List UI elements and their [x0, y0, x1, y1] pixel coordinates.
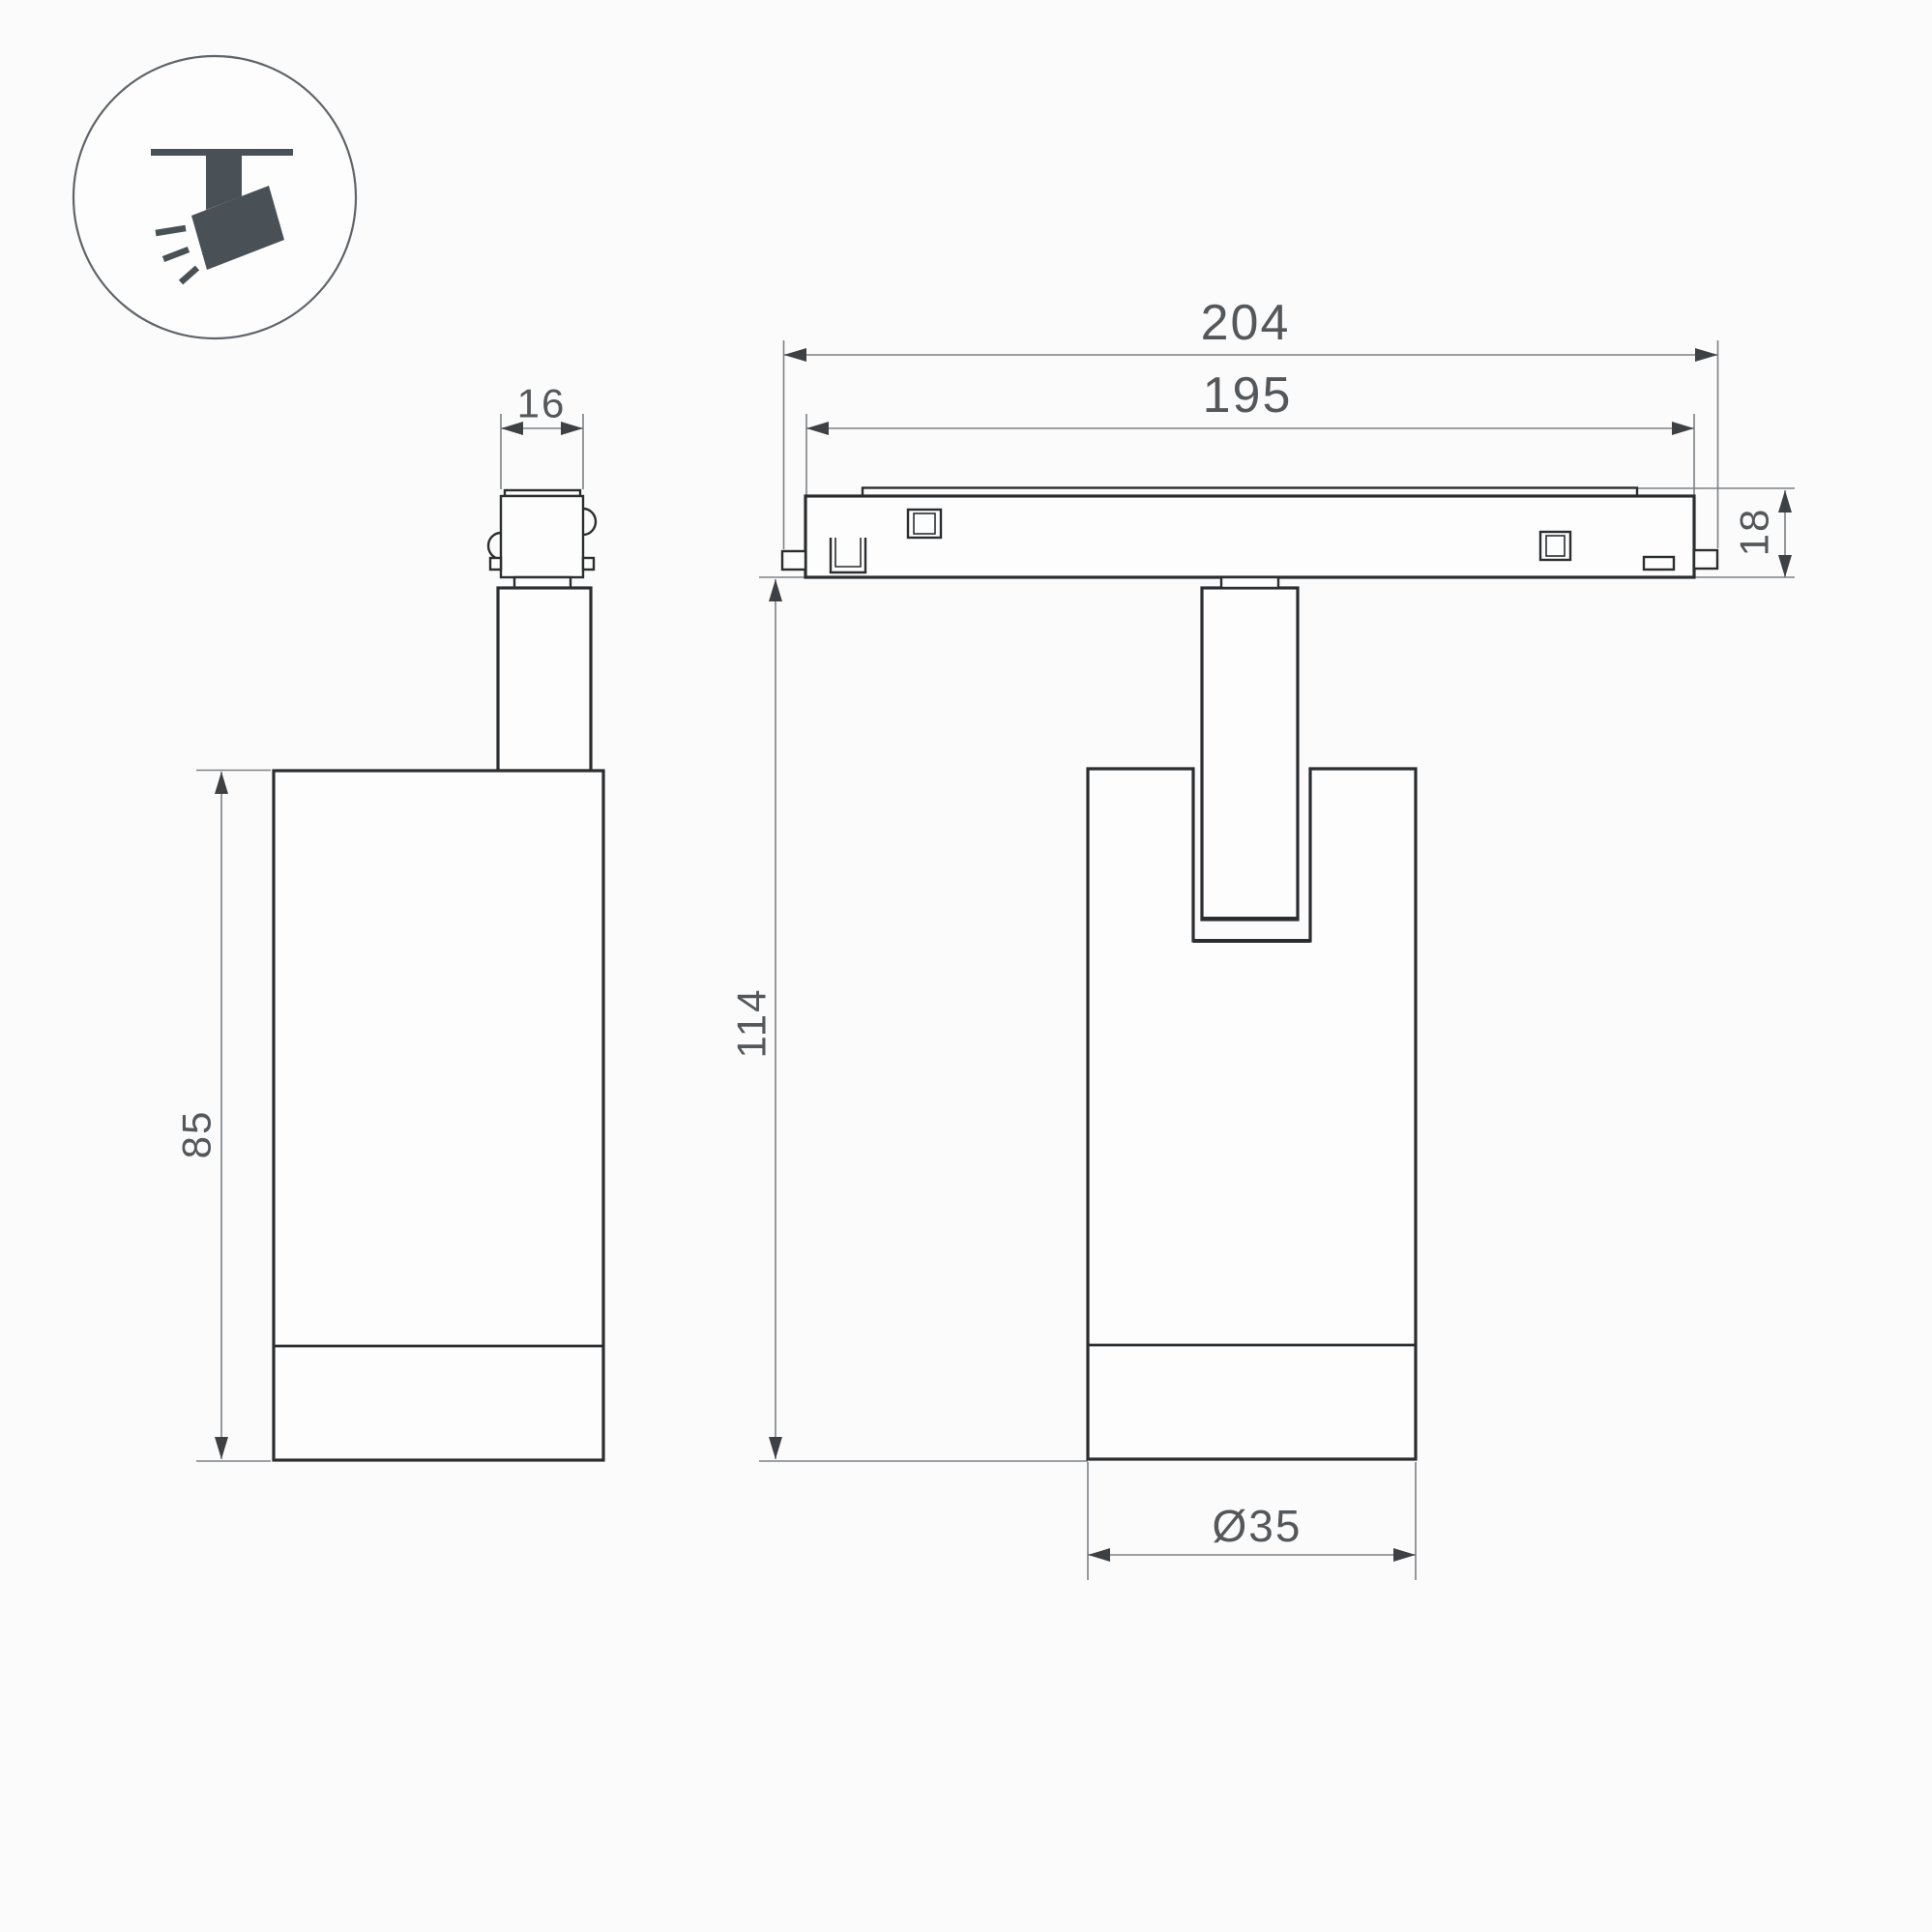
arrowhead: [769, 579, 782, 601]
stem-collar: [1221, 577, 1278, 588]
arrowhead: [1778, 555, 1792, 577]
label-track-height: 18: [1732, 508, 1777, 557]
spot-body: [274, 771, 603, 1460]
label-body-height: 85: [174, 1110, 220, 1159]
label-track-length: 204: [1201, 295, 1291, 351]
arrowhead: [769, 1437, 782, 1459]
track-end-tab-right: [1694, 550, 1717, 569]
arrowhead: [806, 422, 829, 435]
front-view: [782, 488, 1717, 1460]
arrowhead: [1672, 422, 1694, 435]
arrowhead: [1088, 1548, 1110, 1562]
stem-collar: [514, 577, 571, 588]
dimension-drawing: 16 85 204 195 18 114 Ø35: [0, 0, 1932, 1932]
arrowhead: [215, 1437, 228, 1459]
connector-lug-left: [490, 558, 501, 570]
arrowhead: [784, 348, 807, 362]
arrowhead: [1778, 490, 1792, 512]
stem: [1202, 588, 1298, 920]
track-end-tab-left: [782, 551, 805, 570]
arrowhead: [215, 772, 228, 794]
track-spotlight-icon: [73, 56, 356, 338]
track-slot-right: [1644, 557, 1674, 570]
connector-spring-right: [583, 509, 596, 535]
stem: [498, 588, 591, 771]
connector-spring-left: [488, 533, 501, 559]
connector-lug-right: [583, 558, 594, 570]
arrowhead: [1393, 1548, 1416, 1562]
arrowhead: [1695, 348, 1718, 362]
label-track-inner-length: 195: [1203, 367, 1293, 424]
label-body-diameter: Ø35: [1213, 1501, 1303, 1551]
label-connector-width: 16: [517, 381, 567, 426]
label-total-height: 114: [729, 988, 775, 1059]
dim-total-height: [759, 577, 1088, 1461]
track-connector: [501, 496, 583, 577]
side-view: [274, 490, 603, 1460]
dim-track-inner-length: [806, 414, 1694, 495]
